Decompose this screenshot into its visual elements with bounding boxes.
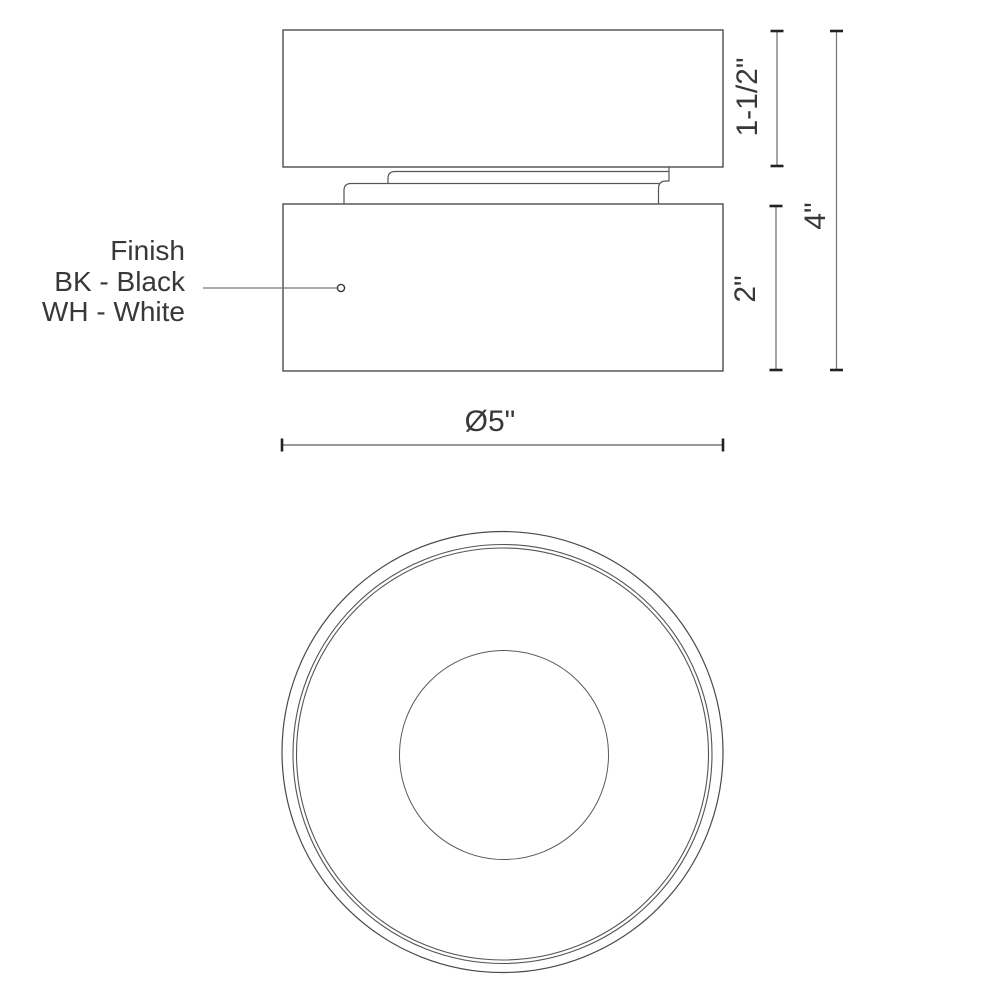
outer-rim-circle [282,532,723,973]
technical-drawing-canvas: Finish BK - Black WH - White 1-1/2" 2" 4… [0,0,1000,1000]
inner-rim-circle-1 [293,545,712,964]
dim-label-upper-height: 1-1/2" [731,57,765,136]
drawing-lines [0,0,1000,1000]
leader-dot [337,284,344,291]
dim-label-lower-height: 2" [729,275,763,302]
finish-note: Finish BK - Black WH - White [42,236,185,328]
inner-rim-circle-2 [297,548,709,960]
dim-lower-height [770,206,783,370]
canopy-outline [283,30,723,167]
lens-circle [400,651,609,860]
dim-diameter [282,439,723,452]
dim-label-diameter: Ø5" [465,405,516,439]
dim-overall-height [830,31,843,370]
mount-plate-upper [388,167,669,204]
finish-option-black: BK - Black [42,267,185,298]
finish-option-white: WH - White [42,297,185,328]
finish-note-title: Finish [42,236,185,267]
finish-leader [203,284,345,291]
side-view [283,30,723,371]
body-outline [283,204,723,371]
bottom-view [282,532,723,973]
dim-upper-height [771,31,784,166]
dim-label-overall-height: 4" [799,202,833,229]
mount-plate-lower [344,184,659,205]
